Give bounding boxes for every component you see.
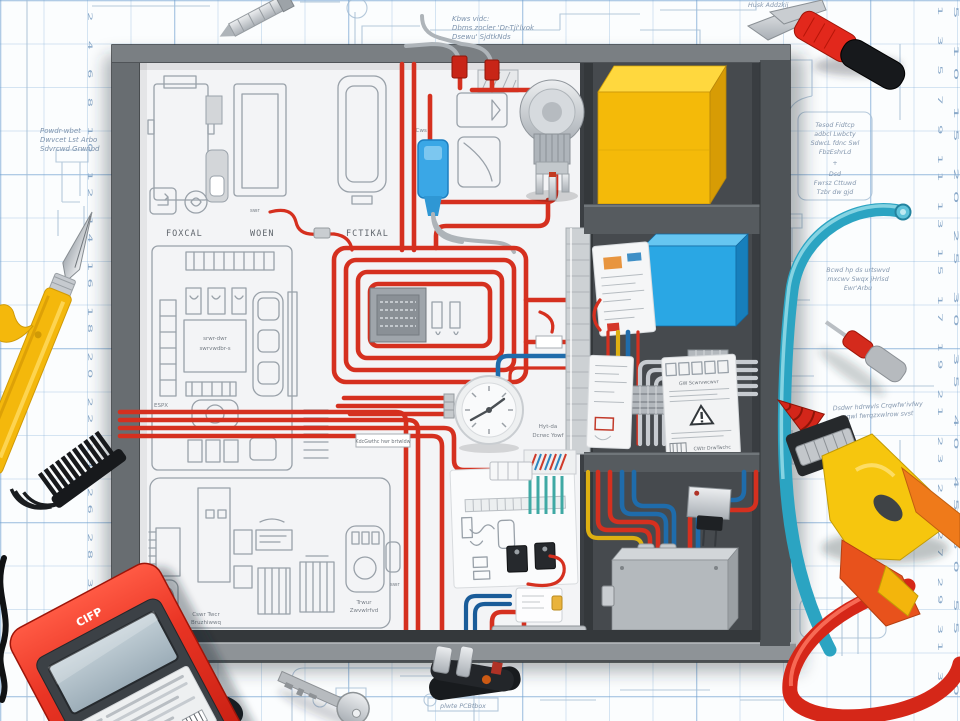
blade [57, 209, 101, 284]
right-note-line: Bcwd hp ds urtswvd [826, 266, 890, 274]
callout-line: adbcl Lwbcty [814, 130, 856, 138]
right-ruler: 1 3 5 7 9 11 13 15 17 19 21 23 25 27 29 … [936, 6, 943, 706]
right-callout: Tesod Fidtcp adbcl Lwbcty SdwcL fdnc Swl… [811, 121, 860, 196]
scene: Powdr-wbet Dwvcet Lst Arbo Sdvrcwd Grwnb… [0, 0, 960, 721]
chip [370, 288, 426, 342]
panel-label-1: FOXCAL [166, 229, 203, 239]
panel-tiny-1: swr [250, 208, 260, 214]
scene-art: Powdr-wbet Dwvcet Lst Arbo Sdvrcwd Grwnb… [0, 0, 960, 721]
fusebox-text-2: swrvwdbr-s [199, 346, 230, 352]
panel-label-2: WOEN [250, 229, 274, 239]
callout-line: + [832, 160, 837, 167]
circuit-card-2 [586, 355, 633, 448]
relay [516, 588, 562, 622]
callout-line: Dsd [829, 171, 842, 178]
right-ruler-inner: 5 10 15 20 25 30 35 40 45 50 55 60 [952, 6, 959, 706]
top-note-line1: Kbws vidc: [452, 15, 489, 23]
right-note-line: Ewr'Arbu [844, 285, 872, 292]
top-right-note: Husk Addzkij [748, 2, 789, 9]
dial-label-1: Hyt-da [539, 424, 557, 430]
drill-bit-small [216, 0, 294, 44]
blue-box [644, 234, 748, 326]
callout-line: SdwcL fdnc Swl [811, 140, 860, 147]
junction-box [602, 548, 738, 630]
top-note-line2: Dbms zocler 'Dr-Tji'lvok [452, 24, 535, 32]
shelf-top [584, 204, 762, 234]
top-note-line3: Dsewu' SjdtkNds [452, 33, 511, 41]
right-note: Bcwd hp ds urtswvd mxcwv Swqx jHrlsd Ewr… [826, 266, 890, 292]
callout-line: FbzEshrLd [819, 149, 852, 156]
conduit-strip [566, 228, 590, 454]
pcb-board [450, 466, 578, 588]
bottom-right-label-1: Trwur [355, 600, 372, 606]
right-note-line: mxcwv Swqx jHrlsd [827, 276, 889, 283]
panel-label-espx: ESPX [154, 403, 168, 409]
box-frame-left [112, 63, 140, 646]
callout-line: Tzbr dw gjd [817, 189, 855, 196]
left-note-line1: Powdr-wbet [40, 127, 81, 135]
wire-tag: KdcGwthc hwr brtwldw [355, 439, 410, 445]
red-bundle-connector [490, 462, 532, 480]
circuit-card-1 [592, 242, 656, 337]
callout-line: Tesod Fidtcp [815, 121, 854, 129]
fusebox-text-1: srwr-dwr [203, 336, 228, 342]
panel-tiny-3: swr [390, 582, 400, 588]
probe-bit [806, 313, 909, 404]
bottom-sketch-title: plwte PCBtbox [439, 702, 486, 710]
wire-connector [536, 336, 562, 348]
label-card: GW Scwrvwcwvr CWtr DrwTwchc [661, 354, 740, 458]
bottom-right-label-2: Zwvwlrfvd [350, 608, 379, 614]
yellow-box [598, 66, 726, 216]
dial-label-2: Dcrwc Yowf [532, 433, 564, 439]
probe-lead [0, 558, 5, 700]
callout-line: Fwrsz Cttuwd [814, 179, 857, 187]
panel-label-3: FCTIKAL [346, 229, 389, 239]
